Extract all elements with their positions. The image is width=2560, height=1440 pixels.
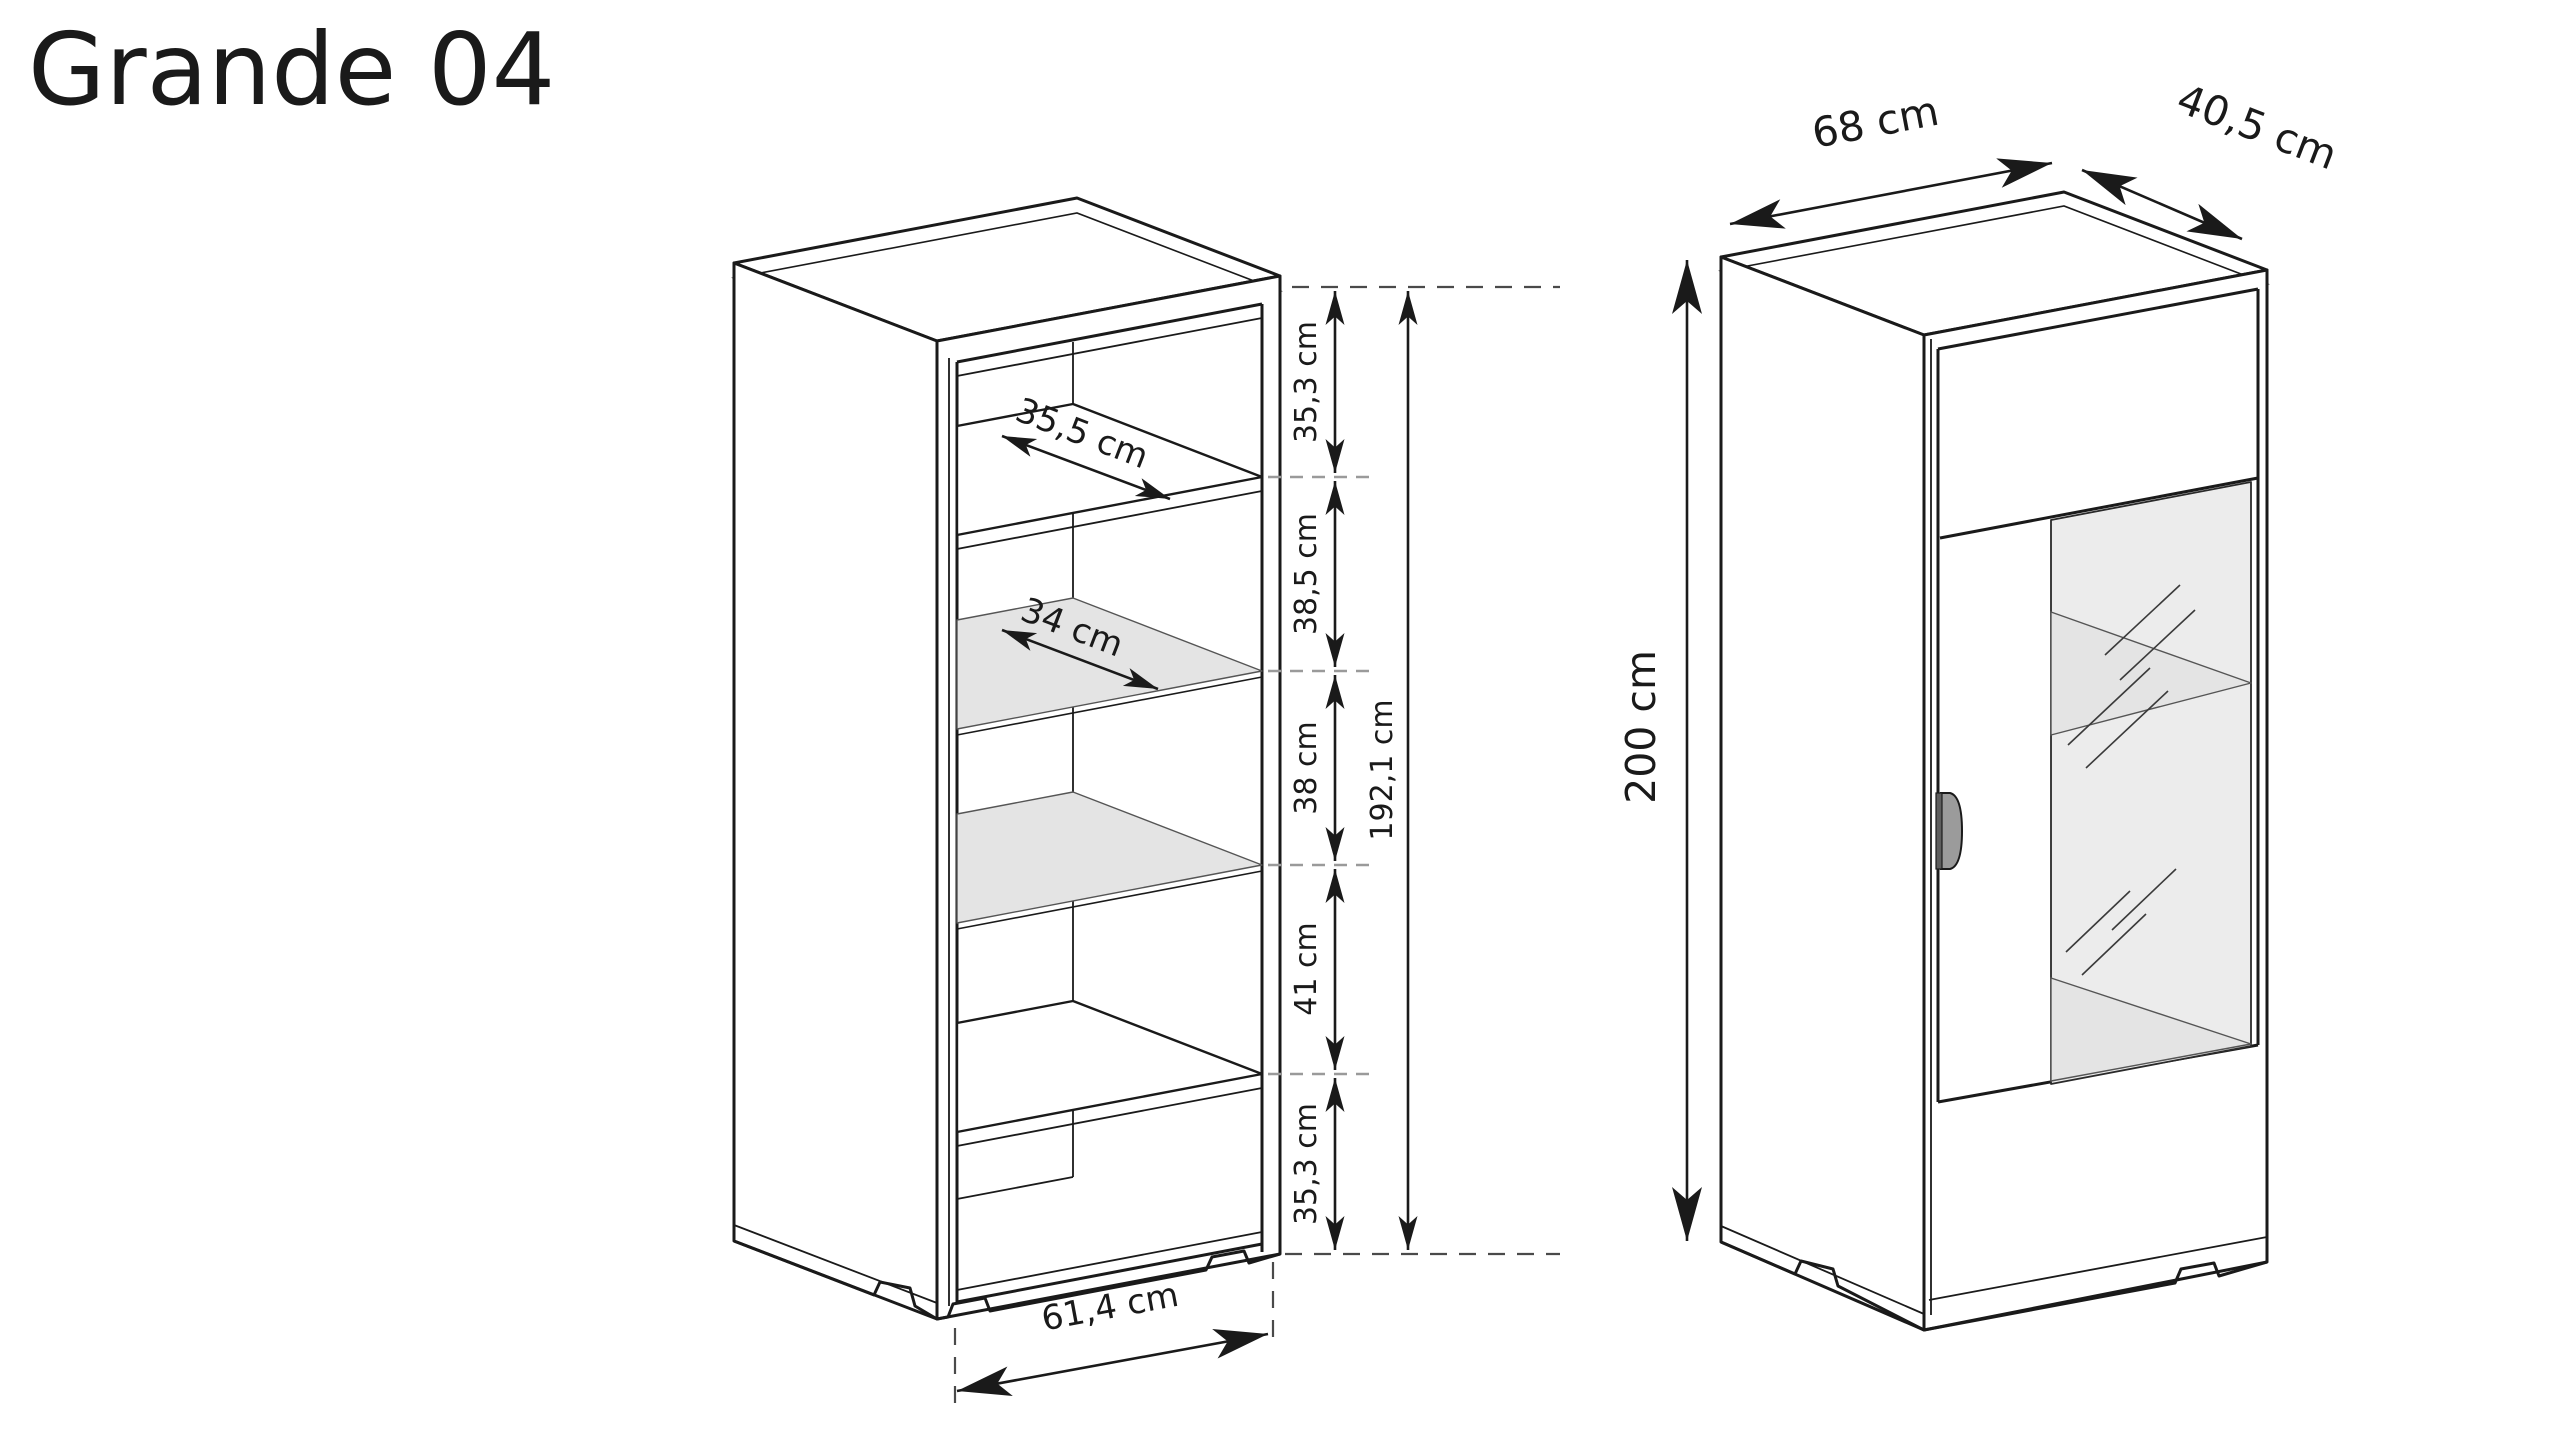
section-label-3: 38 cm [1289,721,1324,814]
right-cabinet-drawing: 68 cm 40,5 cm 200 cm [1617,75,2343,1330]
total-height-label: 192,1 cm [1365,699,1400,840]
door-handle [1936,793,1962,869]
section-label-2: 38,5 cm [1289,513,1324,635]
handle-mount [1936,793,1942,869]
left-side-panel [734,263,937,1319]
section-label-4: 41 cm [1289,922,1324,1015]
furniture-diagram: Grande 04 [0,0,2560,1440]
section-label-1: 35,3 cm [1289,321,1324,443]
page-title: Grande 04 [28,11,555,128]
section-label-5: 35,3 cm [1289,1103,1324,1225]
left-side-panel [1721,257,1924,1330]
depth-label: 40,5 cm [2171,75,2344,180]
interior-width-arrow [957,1334,1268,1391]
diagram-page: Grande 04 [0,0,2560,1440]
left-cabinet-drawing: 35,5 cm 34 cm 35,3 cm 38,5 cm 38 cm 41 c… [734,198,1560,1406]
handle-body [1941,793,1962,869]
height-label: 200 cm [1617,650,1665,804]
glass-door-window [2051,482,2251,1084]
width-label: 68 cm [1808,87,1942,158]
section-dimension-chain: 35,3 cm 38,5 cm 38 cm 41 cm 35,3 cm [1289,291,1335,1250]
